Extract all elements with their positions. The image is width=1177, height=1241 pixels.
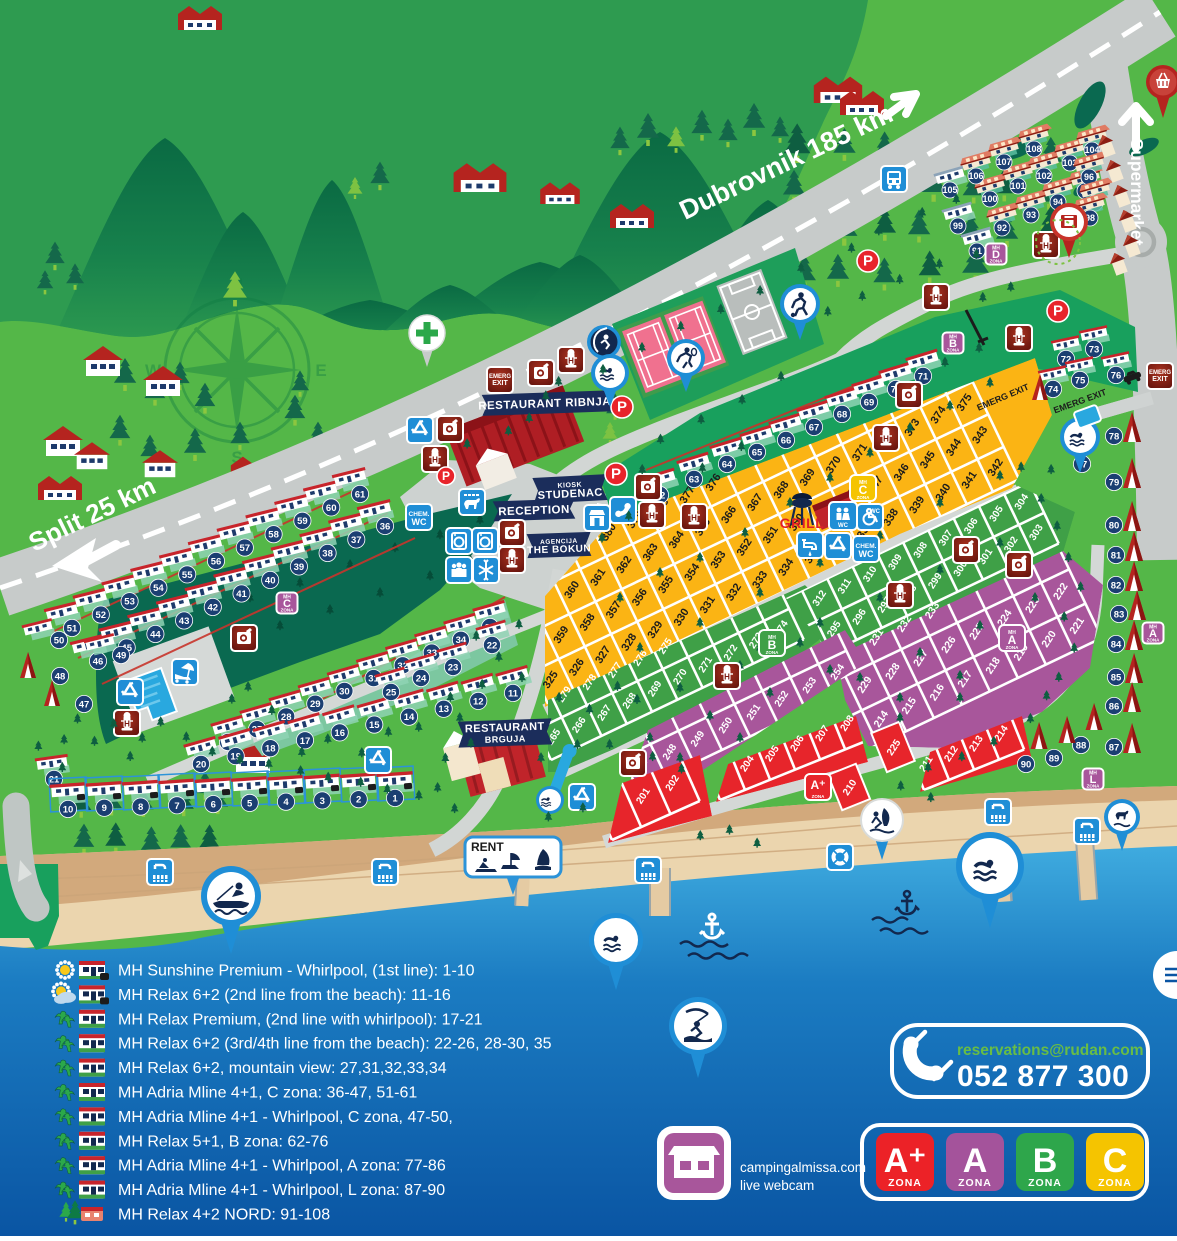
svg-text:96: 96 bbox=[1084, 172, 1094, 182]
svg-text:2: 2 bbox=[356, 795, 361, 806]
svg-text:71: 71 bbox=[918, 371, 929, 382]
svg-text:68: 68 bbox=[837, 409, 848, 420]
svg-text:1: 1 bbox=[392, 793, 398, 804]
svg-text:ZONA: ZONA bbox=[888, 1177, 922, 1189]
svg-text:78: 78 bbox=[1109, 431, 1120, 442]
svg-text:101: 101 bbox=[1010, 181, 1025, 191]
svg-text:H: H bbox=[1043, 242, 1049, 251]
svg-text:10: 10 bbox=[63, 804, 74, 815]
svg-text:H: H bbox=[124, 720, 130, 729]
svg-text:ZONA: ZONA bbox=[990, 258, 1003, 263]
svg-text:66: 66 bbox=[781, 435, 792, 446]
svg-text:51: 51 bbox=[67, 623, 78, 634]
svg-text:81: 81 bbox=[1111, 550, 1122, 561]
svg-text:82: 82 bbox=[1111, 580, 1122, 591]
svg-text:23: 23 bbox=[448, 662, 459, 673]
svg-text:MH Sunshine Premium - Whirlpoo: MH Sunshine Premium - Whirlpool, (1st li… bbox=[118, 963, 475, 980]
svg-text:ZONA: ZONA bbox=[1098, 1177, 1132, 1189]
svg-text:49: 49 bbox=[116, 650, 127, 661]
svg-text:17: 17 bbox=[300, 736, 311, 747]
svg-text:RENT: RENT bbox=[471, 840, 504, 854]
svg-text:H: H bbox=[897, 592, 903, 601]
svg-text:47: 47 bbox=[79, 699, 90, 710]
svg-text:93: 93 bbox=[1026, 210, 1036, 220]
svg-text:40: 40 bbox=[265, 575, 276, 586]
svg-text:48: 48 bbox=[55, 671, 66, 682]
svg-text:102: 102 bbox=[1036, 171, 1051, 181]
svg-text:59: 59 bbox=[297, 516, 308, 527]
svg-text:89: 89 bbox=[1049, 753, 1060, 764]
svg-text:64: 64 bbox=[722, 459, 733, 470]
svg-text:25: 25 bbox=[386, 687, 397, 698]
svg-text:H: H bbox=[509, 557, 515, 566]
svg-text:A⁺: A⁺ bbox=[884, 1142, 927, 1180]
svg-text:3: 3 bbox=[320, 796, 325, 807]
svg-text:67: 67 bbox=[809, 422, 820, 433]
svg-text:108: 108 bbox=[1026, 144, 1041, 154]
svg-text:44: 44 bbox=[150, 629, 161, 640]
svg-text:ZONA: ZONA bbox=[281, 607, 294, 612]
svg-text:42: 42 bbox=[208, 602, 219, 613]
svg-text:69: 69 bbox=[864, 397, 875, 408]
svg-text:MH Relax Premium, (2nd line wi: MH Relax Premium, (2nd line with whirlpo… bbox=[118, 1011, 483, 1028]
svg-text:90: 90 bbox=[1021, 759, 1032, 770]
svg-text:MH Adria Mline 4+1, C zona: 36: MH Adria Mline 4+1, C zona: 36-47, 51-61 bbox=[118, 1085, 417, 1102]
svg-text:MH Relax 5+1, B zona: 62-76: MH Relax 5+1, B zona: 62-76 bbox=[118, 1133, 328, 1150]
svg-text:reservations@rudan.com: reservations@rudan.com bbox=[957, 1042, 1144, 1059]
svg-text:86: 86 bbox=[1109, 701, 1120, 712]
svg-text:P: P bbox=[611, 466, 621, 483]
svg-text:61: 61 bbox=[355, 489, 366, 500]
svg-text:92: 92 bbox=[997, 223, 1007, 233]
svg-text:55: 55 bbox=[182, 570, 193, 581]
svg-text:live webcam: live webcam bbox=[740, 1178, 814, 1193]
svg-text:H: H bbox=[883, 435, 889, 444]
svg-text:73: 73 bbox=[1089, 344, 1100, 355]
svg-text:105: 105 bbox=[942, 185, 957, 195]
svg-text:P: P bbox=[442, 469, 450, 483]
svg-text:18: 18 bbox=[265, 744, 276, 755]
svg-text:H: H bbox=[724, 673, 730, 682]
svg-text:43: 43 bbox=[179, 616, 190, 627]
svg-text:14: 14 bbox=[404, 712, 415, 723]
svg-text:24: 24 bbox=[416, 673, 427, 684]
svg-text:MH Relax 4+2 NORD: 91-108: MH Relax 4+2 NORD: 91-108 bbox=[118, 1207, 330, 1224]
svg-text:H: H bbox=[691, 514, 697, 523]
svg-text:41: 41 bbox=[236, 589, 247, 600]
svg-text:WC: WC bbox=[412, 517, 427, 527]
svg-text:12: 12 bbox=[473, 696, 484, 707]
svg-text:P: P bbox=[1053, 303, 1063, 320]
svg-text:37: 37 bbox=[351, 535, 362, 546]
svg-text:WC: WC bbox=[859, 549, 874, 559]
svg-text:C: C bbox=[1103, 1142, 1128, 1180]
svg-text:38: 38 bbox=[322, 548, 333, 559]
svg-text:ZONA: ZONA bbox=[857, 495, 870, 500]
svg-text:P: P bbox=[863, 253, 873, 270]
svg-text:MH Relax 6+2 (3rd/4th line fro: MH Relax 6+2 (3rd/4th line from the beac… bbox=[118, 1036, 552, 1053]
svg-text:P: P bbox=[617, 399, 627, 416]
svg-text:65: 65 bbox=[752, 447, 763, 458]
svg-text:GRILL: GRILL bbox=[780, 515, 825, 531]
svg-text:46: 46 bbox=[93, 656, 104, 667]
svg-text:83: 83 bbox=[1114, 609, 1125, 620]
svg-text:ZONA: ZONA bbox=[1006, 645, 1019, 650]
svg-text:20: 20 bbox=[196, 759, 207, 770]
svg-text:99: 99 bbox=[953, 221, 963, 231]
svg-text:22: 22 bbox=[487, 640, 498, 651]
svg-text:A⁺: A⁺ bbox=[811, 778, 826, 792]
svg-text:5: 5 bbox=[247, 798, 253, 809]
svg-text:106: 106 bbox=[968, 171, 983, 181]
svg-text:H: H bbox=[649, 512, 655, 521]
svg-text:53: 53 bbox=[124, 597, 135, 608]
svg-text:88: 88 bbox=[1076, 740, 1087, 751]
svg-text:ZONA: ZONA bbox=[812, 794, 825, 799]
svg-text:4: 4 bbox=[283, 797, 289, 808]
svg-text:16: 16 bbox=[334, 728, 345, 739]
svg-text:ZONA: ZONA bbox=[1087, 783, 1100, 788]
svg-text:13: 13 bbox=[438, 704, 449, 715]
svg-text:A: A bbox=[963, 1142, 988, 1180]
svg-text:EXIT: EXIT bbox=[1152, 376, 1168, 383]
svg-text:H: H bbox=[933, 294, 939, 303]
svg-text:6: 6 bbox=[211, 800, 216, 811]
svg-text:ZONA: ZONA bbox=[1147, 637, 1160, 642]
svg-text:56: 56 bbox=[211, 556, 222, 567]
svg-text:RECEPTION: RECEPTION bbox=[498, 504, 570, 518]
svg-text:58: 58 bbox=[268, 530, 279, 541]
svg-text:7: 7 bbox=[174, 801, 179, 812]
svg-text:60: 60 bbox=[326, 503, 337, 514]
svg-text:29: 29 bbox=[310, 699, 321, 710]
svg-text:8: 8 bbox=[138, 802, 143, 813]
svg-text:H: H bbox=[432, 456, 438, 465]
svg-text:100: 100 bbox=[982, 194, 997, 204]
svg-text:84: 84 bbox=[1111, 639, 1122, 650]
svg-text:63: 63 bbox=[689, 474, 700, 485]
svg-text:H: H bbox=[1016, 335, 1022, 344]
svg-text:ZONA: ZONA bbox=[1028, 1177, 1062, 1189]
svg-text:21: 21 bbox=[49, 774, 60, 785]
svg-text:052 877 300: 052 877 300 bbox=[957, 1060, 1129, 1093]
svg-text:B: B bbox=[1033, 1142, 1058, 1180]
svg-text:54: 54 bbox=[153, 583, 164, 594]
svg-text:ZONA: ZONA bbox=[958, 1177, 992, 1189]
svg-text:87: 87 bbox=[1109, 742, 1120, 753]
svg-text:MH Relax 6+2, mountain view: 2: MH Relax 6+2, mountain view: 27,31,32,33… bbox=[118, 1060, 447, 1077]
svg-text:ZONA: ZONA bbox=[766, 650, 779, 655]
svg-text:75: 75 bbox=[1075, 375, 1086, 386]
svg-text:52: 52 bbox=[96, 610, 107, 621]
svg-text:50: 50 bbox=[54, 635, 65, 646]
svg-text:57: 57 bbox=[240, 543, 251, 554]
svg-text:EXIT: EXIT bbox=[492, 380, 508, 387]
svg-text:76: 76 bbox=[1111, 370, 1122, 381]
svg-text:79: 79 bbox=[1109, 477, 1120, 488]
svg-text:85: 85 bbox=[1111, 672, 1122, 683]
svg-text:30: 30 bbox=[339, 686, 350, 697]
svg-text:11: 11 bbox=[508, 688, 519, 699]
svg-text:39: 39 bbox=[294, 562, 305, 573]
svg-text:campingalmissa.com: campingalmissa.com bbox=[740, 1160, 866, 1175]
svg-text:MH Adria Mline 4+1 - Whirlpool: MH Adria Mline 4+1 - Whirlpool, C zona, … bbox=[118, 1109, 453, 1126]
svg-text:MH Adria Mline 4+1 - Whirlpool: MH Adria Mline 4+1 - Whirlpool, L zona: … bbox=[118, 1182, 445, 1199]
svg-text:15: 15 bbox=[369, 720, 380, 731]
svg-text:107: 107 bbox=[996, 157, 1011, 167]
svg-text:9: 9 bbox=[102, 803, 107, 814]
svg-text:E: E bbox=[315, 361, 326, 380]
svg-text:ZONA: ZONA bbox=[947, 347, 960, 352]
svg-text:MH Adria Mline 4+1 - Whirlpool: MH Adria Mline 4+1 - Whirlpool, A zona: … bbox=[118, 1158, 446, 1175]
svg-text:MH Relax 6+2 (2nd line from th: MH Relax 6+2 (2nd line from the beach): … bbox=[118, 987, 451, 1004]
svg-text:36: 36 bbox=[380, 521, 391, 532]
svg-text:BRGUJA: BRGUJA bbox=[485, 733, 526, 744]
svg-text:WC: WC bbox=[838, 523, 849, 529]
svg-text:WC: WC bbox=[870, 509, 881, 515]
svg-text:THE BOKUN: THE BOKUN bbox=[527, 543, 591, 556]
svg-text:H: H bbox=[568, 357, 574, 366]
svg-text:80: 80 bbox=[1109, 520, 1120, 531]
svg-text:74: 74 bbox=[1048, 384, 1059, 395]
